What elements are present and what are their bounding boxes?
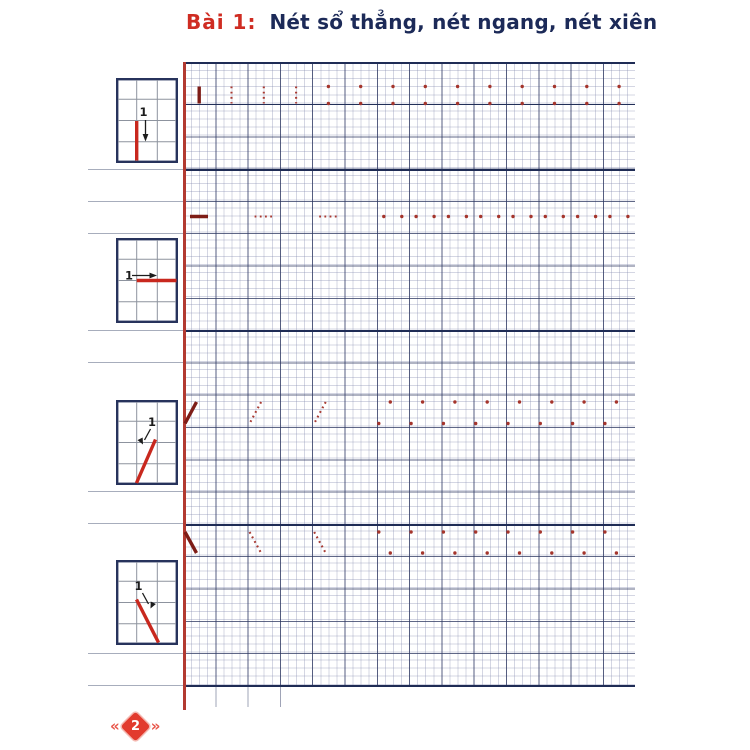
margin-rule bbox=[88, 491, 183, 492]
margin-rule bbox=[88, 523, 183, 524]
grid-section-line bbox=[183, 524, 635, 526]
stroke-diagram-vertical: 1 bbox=[116, 78, 178, 163]
grid-section-line bbox=[183, 330, 635, 332]
lesson-title: Nét sổ thẳng, nét ngang, nét xiên bbox=[269, 10, 657, 34]
margin-rule bbox=[88, 653, 183, 654]
grid-baseline bbox=[183, 104, 635, 105]
margin-rule bbox=[88, 330, 183, 331]
stroke-guide-box-slant-right: 1 bbox=[116, 560, 178, 645]
step-number-label: 1 bbox=[148, 415, 156, 429]
margin-rule bbox=[88, 233, 183, 234]
margin-rule bbox=[88, 362, 183, 363]
step-number-label: 1 bbox=[125, 269, 133, 283]
step-number-label: 1 bbox=[135, 579, 143, 593]
practice-grid bbox=[183, 62, 635, 686]
page-number-badge: « 2 » bbox=[110, 710, 160, 742]
margin-rule bbox=[88, 169, 183, 170]
margin-rule bbox=[88, 201, 183, 202]
stroke-guide-box-slant-left: 1 bbox=[116, 400, 178, 485]
lesson-number: Bài 1: bbox=[186, 10, 256, 34]
page-number-chevron-right-icon: » bbox=[151, 719, 161, 734]
grid-bottom-stubs bbox=[183, 686, 307, 707]
lesson-header: Bài 1: Nét sổ thẳng, nét ngang, nét xiên bbox=[186, 10, 657, 34]
stroke-diagram-slant-left: 1 bbox=[116, 400, 178, 485]
step-number-label: 1 bbox=[140, 105, 148, 119]
workbook-page: Bài 1: Nét sổ thẳng, nét ngang, nét xiên… bbox=[0, 0, 750, 750]
stroke-diagram-horizontal: 1 bbox=[116, 238, 178, 323]
red-margin-line bbox=[183, 62, 186, 710]
margin-rule bbox=[88, 685, 183, 686]
stroke-diagram-slant-right: 1 bbox=[116, 560, 178, 645]
grid-row-lines bbox=[183, 104, 635, 686]
page-number-chevron-left-icon: « bbox=[110, 719, 120, 734]
page-number: 2 bbox=[131, 718, 140, 733]
stroke-guide-box-vertical: 1 bbox=[116, 78, 178, 163]
stroke-guide-box-horizontal: 1 bbox=[116, 238, 178, 323]
grid-section-line bbox=[183, 169, 635, 171]
page-number-diamond: 2 bbox=[120, 711, 150, 741]
grid-section-line bbox=[183, 62, 635, 64]
